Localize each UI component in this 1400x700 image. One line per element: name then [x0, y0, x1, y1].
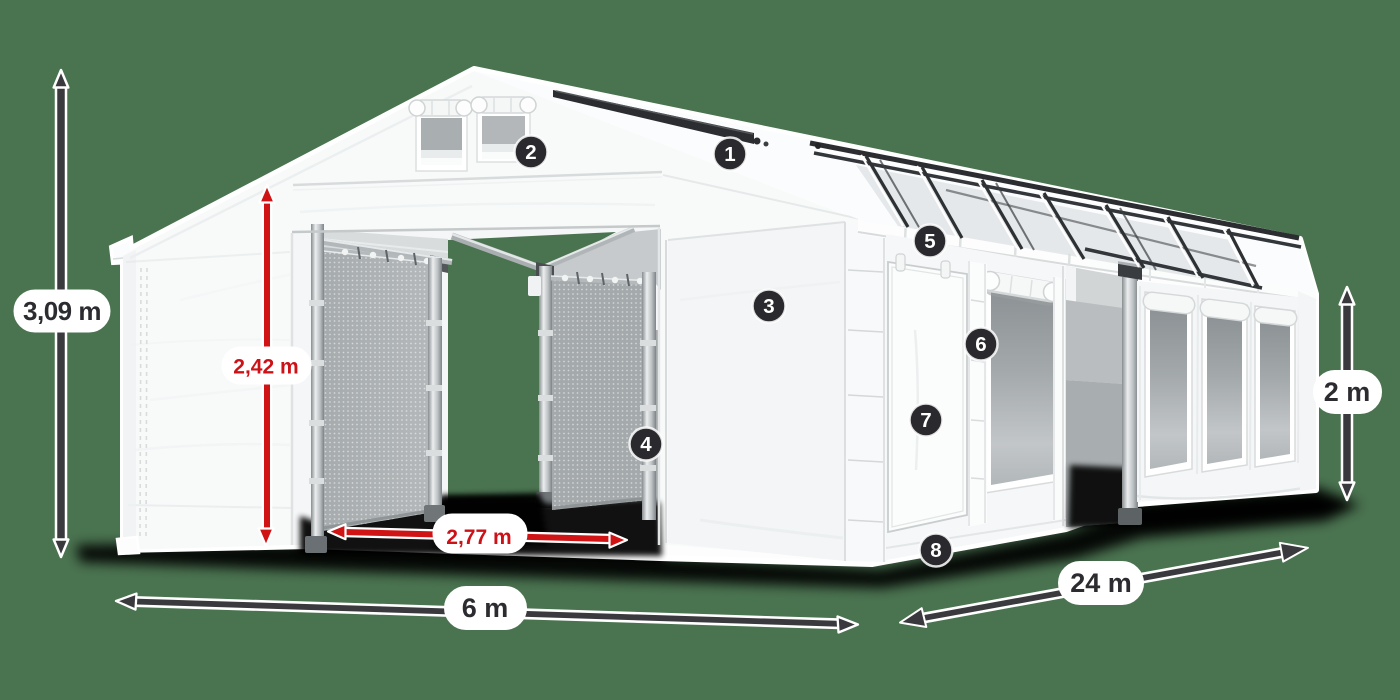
svg-text:7: 7 [920, 409, 931, 432]
svg-text:3,09 m: 3,09 m [23, 296, 101, 326]
svg-text:2: 2 [525, 141, 536, 164]
svg-text:2,42 m: 2,42 m [233, 356, 298, 379]
svg-text:24 m: 24 m [1070, 568, 1132, 598]
svg-text:3: 3 [763, 295, 774, 318]
svg-text:2,77 m: 2,77 m [446, 526, 511, 549]
svg-text:5: 5 [924, 230, 935, 253]
svg-text:1: 1 [724, 143, 735, 166]
svg-text:6: 6 [975, 333, 986, 356]
svg-text:2 m: 2 m [1324, 377, 1371, 407]
svg-text:4: 4 [640, 433, 652, 456]
svg-text:6 m: 6 m [462, 593, 509, 623]
svg-text:8: 8 [930, 539, 941, 562]
